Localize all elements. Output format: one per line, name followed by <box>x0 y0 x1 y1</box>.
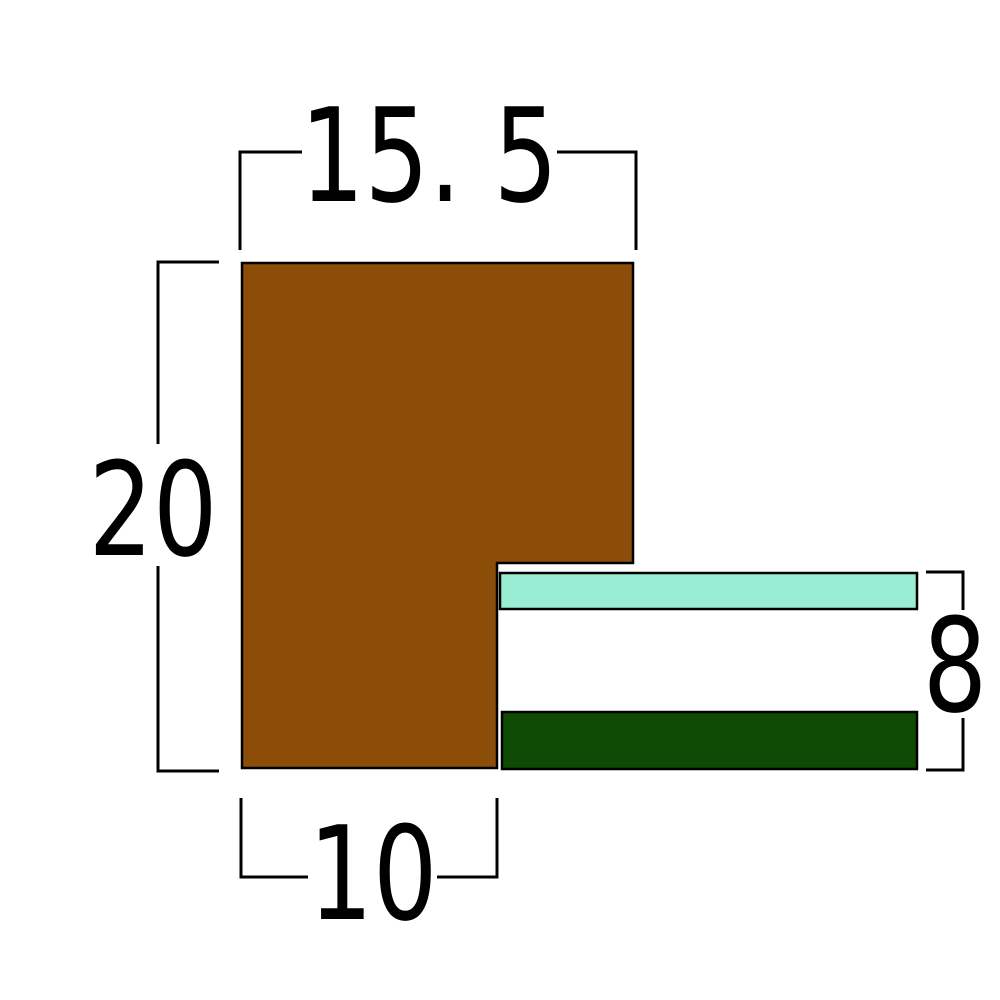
dimension-label-top-width: 15. 5 <box>300 91 558 221</box>
green-strip <box>502 712 917 769</box>
teal-strip <box>500 573 917 609</box>
dimension-label-right-height: 8 <box>923 601 988 731</box>
dimension-diagram: 15. 5 20 10 8 <box>0 0 1000 1000</box>
moulding-profile-shape <box>242 263 633 768</box>
dimension-label-bottom-width: 10 <box>308 809 437 939</box>
dimension-label-left-height: 20 <box>88 445 217 575</box>
